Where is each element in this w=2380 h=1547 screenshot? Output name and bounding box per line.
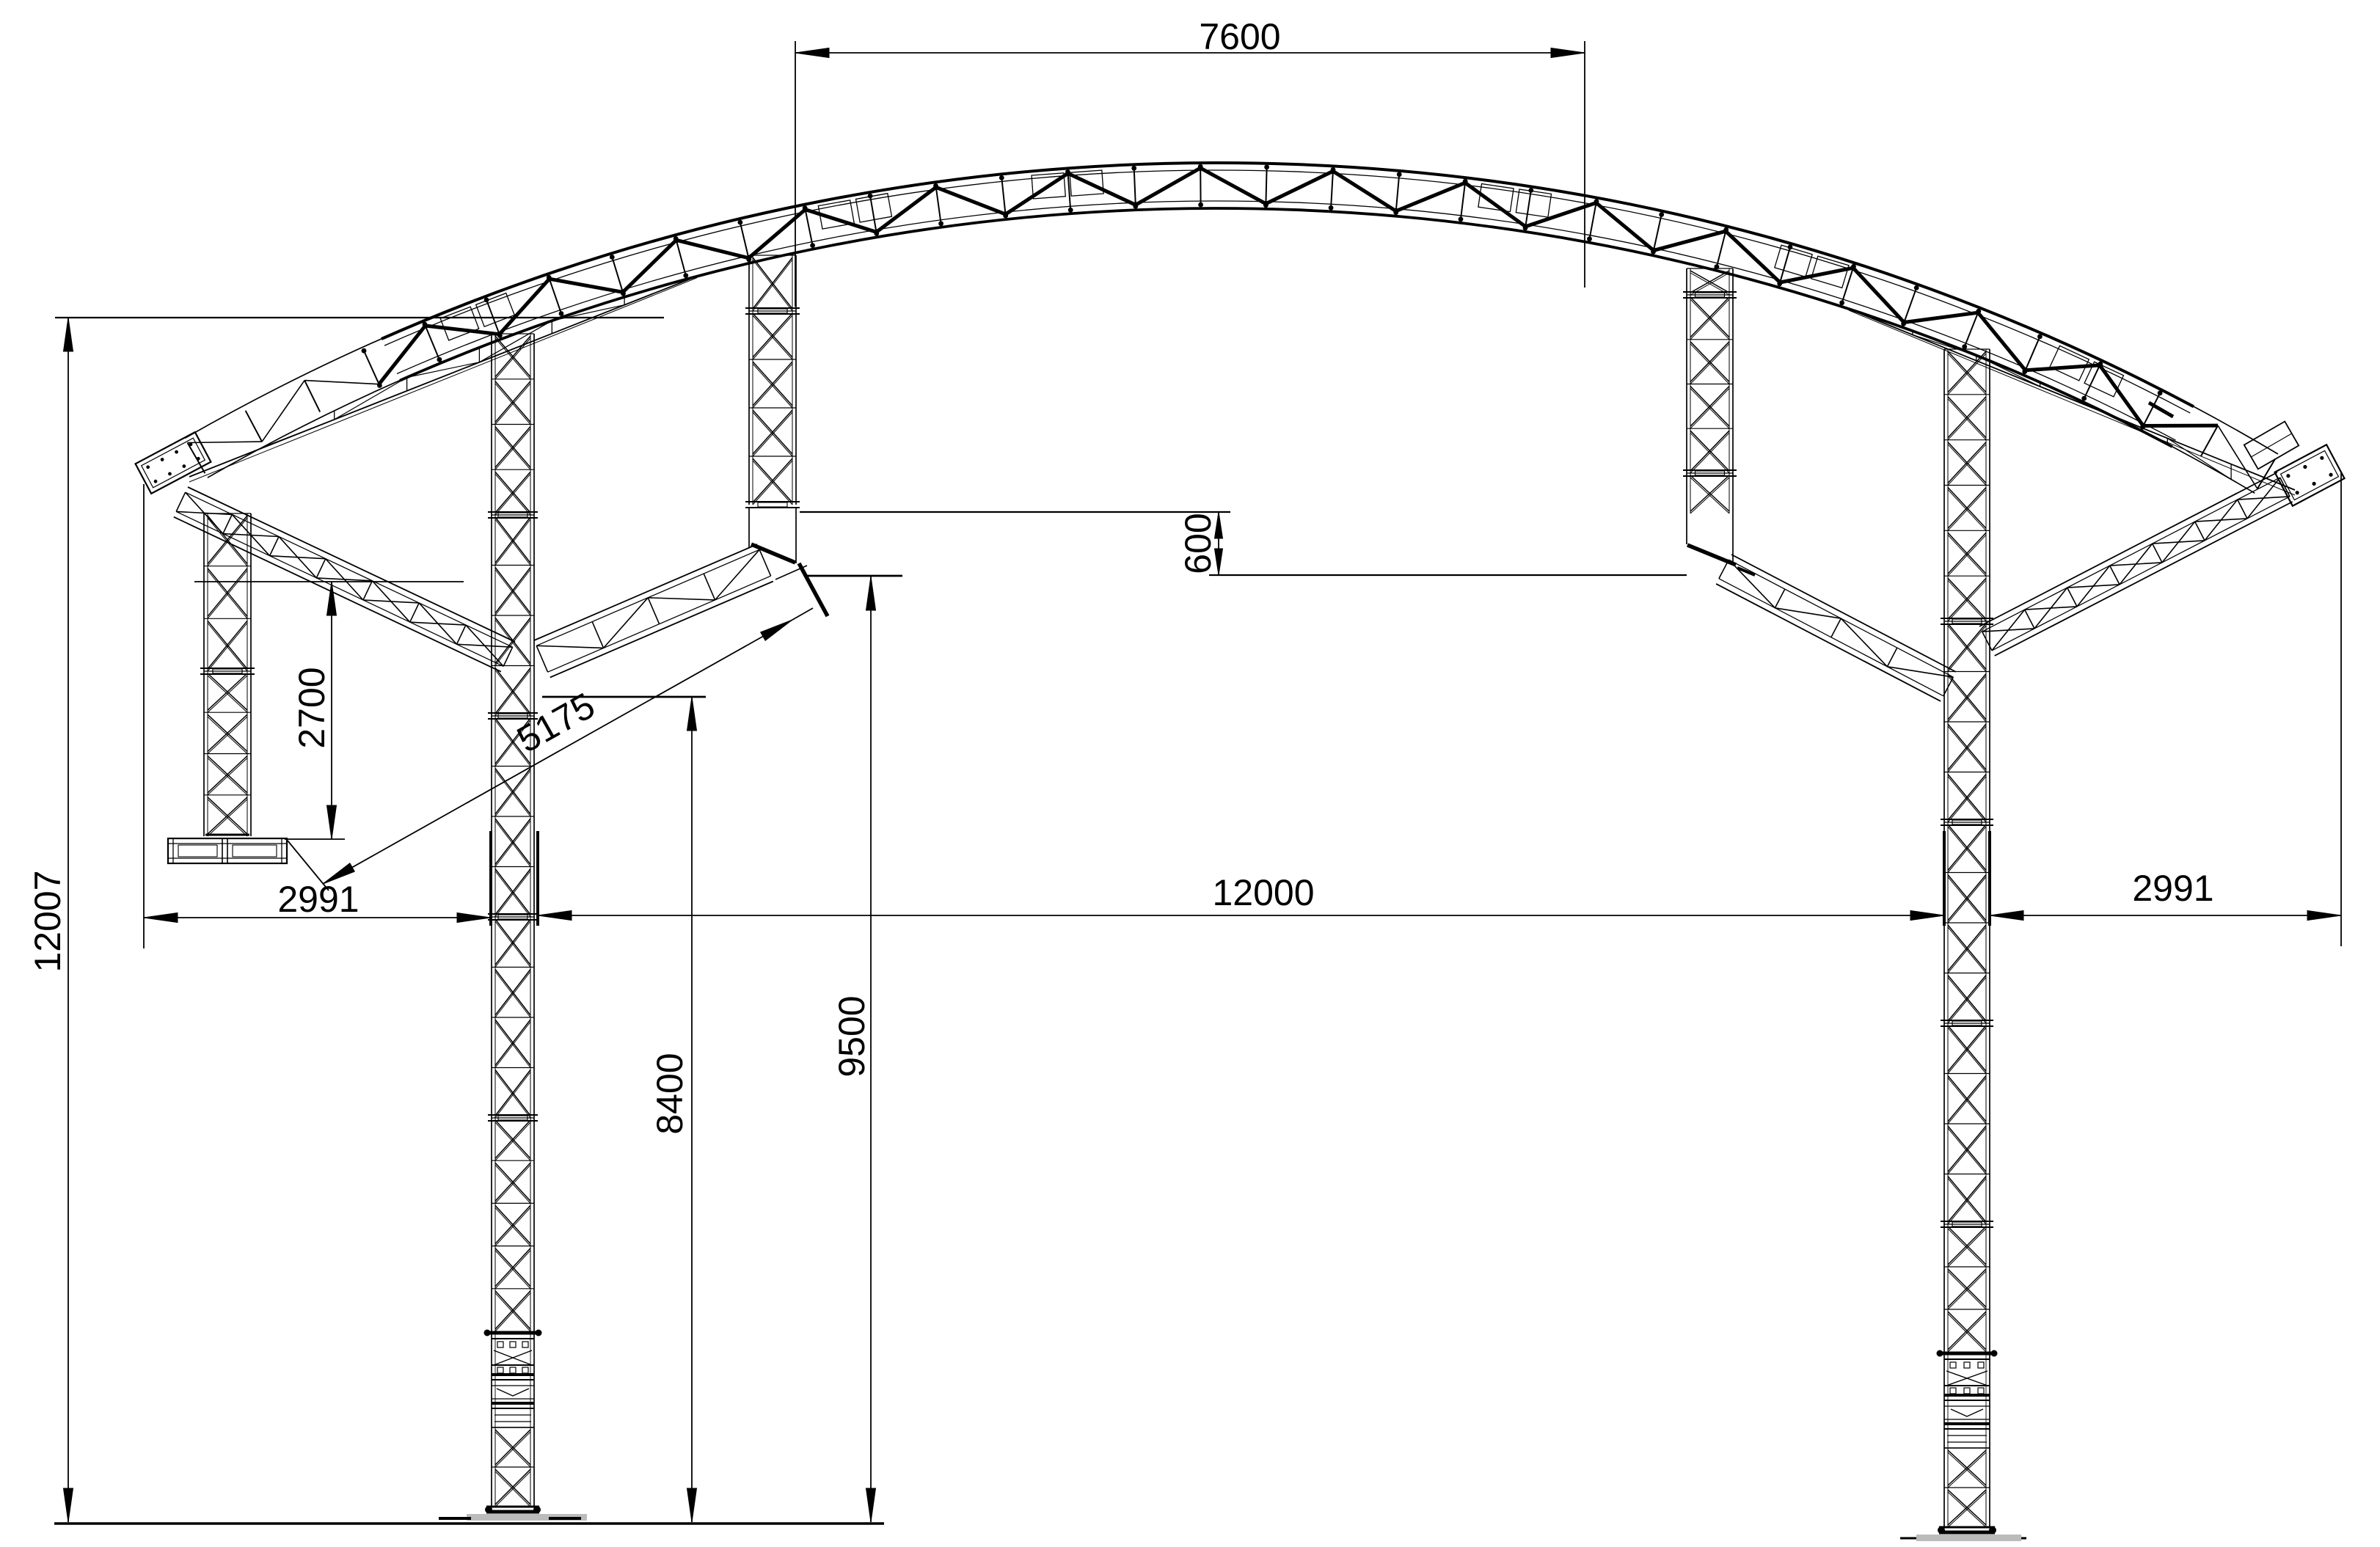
- svg-text:2700: 2700: [291, 667, 332, 748]
- svg-text:8400: 8400: [649, 1053, 690, 1134]
- svg-text:12000: 12000: [1212, 872, 1314, 913]
- svg-text:7600: 7600: [1199, 16, 1280, 57]
- svg-text:600: 600: [1178, 513, 1219, 574]
- svg-text:9500: 9500: [831, 995, 872, 1077]
- svg-text:12007: 12007: [27, 870, 68, 972]
- svg-text:2991: 2991: [2132, 868, 2213, 909]
- svg-text:2991: 2991: [277, 879, 359, 920]
